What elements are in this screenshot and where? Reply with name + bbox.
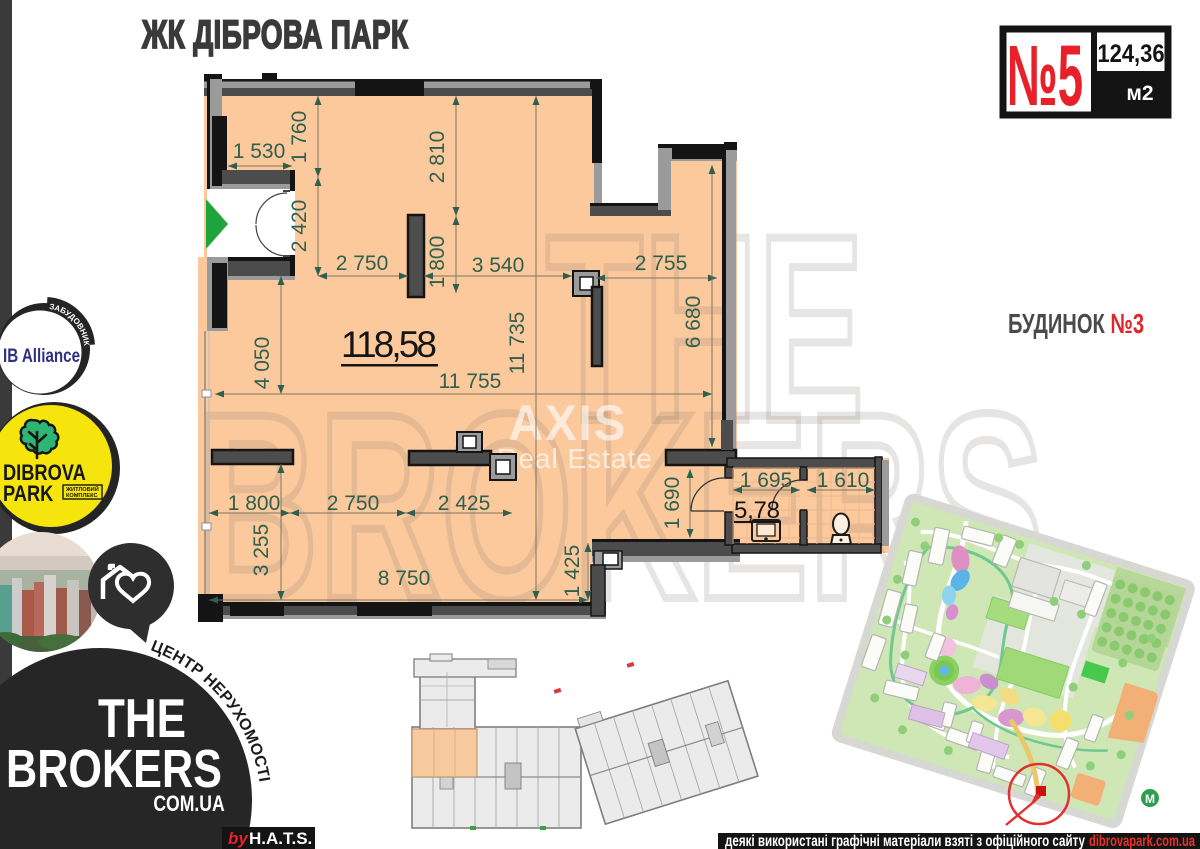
svg-text:2 425: 2 425 [438,492,491,515]
svg-text:BROKERS: BROKERS [6,740,222,800]
svg-text:деякі використані графічні мат: деякі використані графічні матеріали взя… [725,833,1085,849]
svg-text:4 050: 4 050 [251,337,274,390]
svg-text:БУДИНОК №3: БУДИНОК №3 [1008,309,1144,340]
svg-text:М: М [1145,792,1155,806]
svg-text:1 800: 1 800 [228,492,281,515]
svg-text:COM.UA: COM.UA [153,792,224,816]
svg-text:1 760: 1 760 [288,111,311,164]
svg-text:11 755: 11 755 [439,370,502,393]
svg-text:2 750: 2 750 [327,492,380,515]
svg-text:1 530: 1 530 [233,140,286,163]
svg-text:1 695: 1 695 [740,469,793,492]
svg-text:8 750: 8 750 [378,567,431,590]
svg-text:1 610: 1 610 [817,469,870,492]
svg-text:1 690: 1 690 [661,477,684,530]
svg-text:6 680: 6 680 [682,296,705,349]
svg-text:1 425: 1 425 [561,545,584,598]
svg-text:2 755: 2 755 [635,252,688,275]
svg-text:№5: №5 [1007,28,1083,124]
svg-text:by: by [228,829,249,848]
svg-text:11 735: 11 735 [506,312,529,375]
svg-text:H.A.T.S.: H.A.T.S. [249,829,312,848]
svg-text:5,78: 5,78 [734,497,780,524]
svg-text:ЖИТЛОВИЙ: ЖИТЛОВИЙ [65,485,99,493]
svg-text:Real Estate: Real Estate [497,443,653,474]
svg-text:PARK: PARK [3,483,54,507]
svg-text:3 255: 3 255 [250,524,273,577]
svg-text:2 420: 2 420 [288,200,311,253]
svg-text:124,36: 124,36 [1097,40,1164,68]
svg-text:3 540: 3 540 [472,254,525,277]
svg-text:м2: м2 [1126,82,1153,105]
svg-text:118,58: 118,58 [341,324,437,365]
svg-text:1 800: 1 800 [426,236,449,289]
svg-text:2 750: 2 750 [336,252,389,275]
svg-text:2 810: 2 810 [426,131,449,184]
svg-text:IB Alliance: IB Alliance [3,344,80,366]
svg-text:dibrovapark.com.ua: dibrovapark.com.ua [1089,833,1195,849]
svg-text:КОМПЛЕКС: КОМПЛЕКС [66,493,97,499]
